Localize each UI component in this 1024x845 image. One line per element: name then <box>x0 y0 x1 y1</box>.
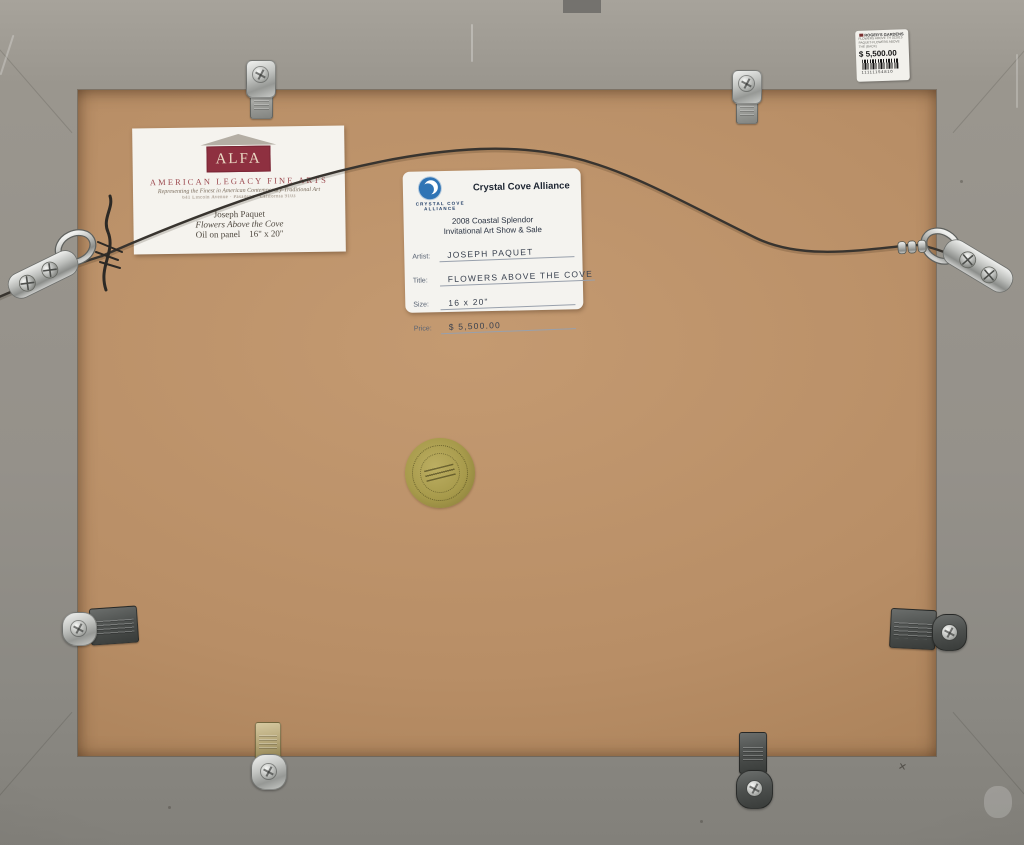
size-field: Size: 16 x 20" <box>413 283 575 309</box>
artist-field-label: Artist: <box>412 253 439 262</box>
cca-event-line1: 2008 Coastal Splendor <box>452 215 534 226</box>
screw-icon <box>942 625 957 640</box>
frame-clip-bottom-right <box>734 730 776 808</box>
cca-event-name: 2008 Coastal Splendor Invitational Art S… <box>412 214 574 237</box>
price-sticker: ROGER'S GARDENS FLOWERS ABOVE TH 022815 … <box>855 29 910 82</box>
artwork-medium-size: Oil on panel 16" x 20" <box>134 228 346 241</box>
barcode-number: 11111154810 <box>861 69 906 76</box>
frame-scratch <box>1016 54 1018 108</box>
alfa-logo-text: ALFA <box>215 150 261 168</box>
cca-logo-line2: ALLIANCE <box>424 206 456 212</box>
gallery-name: AMERICAN LEGACY FINE ARTS <box>133 175 345 188</box>
clip-plate <box>736 770 773 809</box>
alfa-pediment-logo-icon <box>200 133 276 145</box>
screw-icon <box>71 621 86 636</box>
frame-scratch <box>0 35 14 76</box>
frame-paint-chip <box>984 786 1012 818</box>
frame-miter-top-left <box>0 38 72 133</box>
price-field-label: Price: <box>414 325 441 334</box>
clip-tab <box>739 732 767 774</box>
gallery-label: ALFA AMERICAN LEGACY FINE ARTS Represent… <box>132 126 346 255</box>
seal-center-text <box>424 464 456 483</box>
screw-icon <box>261 764 276 779</box>
clip-tab <box>889 608 937 650</box>
frame-speck <box>700 820 703 823</box>
frame-speck <box>168 806 171 809</box>
artist-field: Artist: JOSEPH PAQUET <box>412 235 574 261</box>
frame-speck <box>960 180 963 183</box>
frame-miter-top-right <box>953 38 1024 133</box>
frame-clip-right-side <box>890 606 968 654</box>
cca-org-name: Crystal Cove Alliance <box>473 180 570 193</box>
frame-clip-top-right <box>731 70 763 124</box>
frame-clip-top-left <box>246 60 278 120</box>
clip-plate <box>62 612 97 646</box>
frame-top-gap <box>563 0 601 13</box>
scratch-x-mark: ✕ <box>897 761 907 774</box>
title-field: Title: FLOWERS ABOVE THE COVE <box>412 259 574 285</box>
framed-painting-back-photo: ✕ ALFA AMERICAN LEGACY FINE ARTS Represe… <box>0 0 1024 845</box>
cca-header: CRYSTAL COVE ALLIANCE Crystal Cove Allia… <box>411 174 574 217</box>
screw-icon <box>739 76 754 91</box>
cca-event-line2: Invitational Art Show & Sale <box>444 225 542 236</box>
clip-plate <box>246 60 276 98</box>
cca-logo-caption: CRYSTAL COVE ALLIANCE <box>405 200 475 211</box>
art-show-label: CRYSTAL COVE ALLIANCE Crystal Cove Allia… <box>403 168 584 313</box>
clip-plate <box>732 70 762 104</box>
clip-plate <box>251 754 287 790</box>
price-field: Price: $ 5,500.00 <box>413 307 575 333</box>
alfa-logo: ALFA <box>206 146 270 173</box>
crystal-cove-wave-icon <box>419 177 441 199</box>
sticker-price: $ 5,500.00 <box>859 49 906 60</box>
frame-clip-bottom-left <box>250 720 290 790</box>
frame-scratch <box>471 24 473 62</box>
frame-miter-bottom-left <box>0 712 72 807</box>
title-field-label: Title: <box>413 277 440 286</box>
size-field-label: Size: <box>413 301 440 310</box>
screw-icon <box>253 67 268 82</box>
clip-plate <box>932 614 967 651</box>
screw-icon <box>747 781 762 796</box>
frame-clip-left-side <box>60 602 140 648</box>
